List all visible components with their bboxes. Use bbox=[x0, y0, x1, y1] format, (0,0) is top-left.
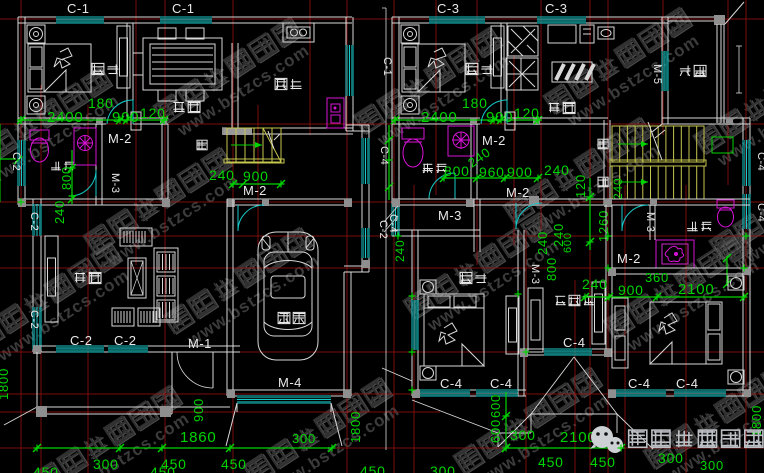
svg-text:C-2: C-2 bbox=[10, 152, 22, 171]
svg-text:450: 450 bbox=[590, 454, 616, 470]
svg-text:120: 120 bbox=[140, 105, 166, 121]
svg-text:C-4: C-4 bbox=[490, 376, 512, 391]
svg-text:1800: 1800 bbox=[348, 411, 363, 443]
svg-text:800: 800 bbox=[544, 257, 559, 281]
svg-text:C-4: C-4 bbox=[563, 335, 585, 350]
svg-text:C-2: C-2 bbox=[28, 310, 40, 329]
svg-text:M-2: M-2 bbox=[243, 183, 267, 198]
svg-text:C-1: C-1 bbox=[172, 1, 194, 16]
svg-text:2400: 2400 bbox=[47, 109, 84, 126]
svg-text:1860: 1860 bbox=[180, 429, 217, 446]
svg-text:C-1: C-1 bbox=[381, 57, 393, 76]
svg-text:900: 900 bbox=[618, 282, 644, 298]
svg-text:240: 240 bbox=[611, 178, 625, 200]
svg-text:2400: 2400 bbox=[421, 109, 458, 126]
svg-text:450: 450 bbox=[150, 464, 176, 473]
svg-text:300: 300 bbox=[700, 458, 724, 473]
svg-text:240: 240 bbox=[582, 276, 608, 292]
svg-text:300: 300 bbox=[93, 456, 119, 472]
svg-text:C-4: C-4 bbox=[440, 376, 462, 391]
svg-text:450: 450 bbox=[221, 456, 247, 472]
svg-text:600: 600 bbox=[488, 419, 503, 443]
svg-text:C-1: C-1 bbox=[67, 1, 89, 16]
svg-text:240: 240 bbox=[52, 200, 67, 224]
svg-text:C-4: C-4 bbox=[378, 146, 390, 165]
svg-text:800: 800 bbox=[444, 163, 470, 179]
svg-text:450: 450 bbox=[33, 464, 59, 473]
svg-text:C-2: C-2 bbox=[70, 333, 92, 348]
svg-text:180: 180 bbox=[88, 95, 114, 111]
svg-text:M-2: M-2 bbox=[108, 131, 132, 146]
svg-text:300: 300 bbox=[658, 450, 684, 466]
svg-text:M-5: M-5 bbox=[651, 64, 663, 84]
svg-text:450: 450 bbox=[538, 454, 564, 470]
svg-text:M-2: M-2 bbox=[617, 251, 641, 266]
svg-text:C-4: C-4 bbox=[676, 376, 698, 391]
svg-text:1800: 1800 bbox=[0, 368, 11, 400]
svg-text:300: 300 bbox=[430, 463, 456, 473]
svg-text:300: 300 bbox=[510, 427, 536, 443]
svg-text:240: 240 bbox=[209, 167, 235, 183]
svg-text:C-3: C-3 bbox=[437, 1, 459, 16]
svg-text:C-4: C-4 bbox=[755, 152, 764, 171]
svg-text:2100: 2100 bbox=[678, 281, 715, 298]
svg-text:900: 900 bbox=[243, 168, 269, 184]
svg-text:1260: 1260 bbox=[596, 210, 611, 242]
svg-text:240: 240 bbox=[393, 240, 407, 262]
svg-text:M-2: M-2 bbox=[506, 185, 530, 200]
svg-text:600: 600 bbox=[562, 232, 574, 253]
svg-text:C-2: C-2 bbox=[28, 212, 40, 231]
svg-text:C-4: C-4 bbox=[755, 203, 764, 222]
svg-text:240: 240 bbox=[535, 231, 550, 255]
svg-text:180: 180 bbox=[462, 95, 488, 111]
svg-text:M-4: M-4 bbox=[278, 375, 302, 390]
svg-text:300: 300 bbox=[292, 431, 316, 446]
svg-text:C-4: C-4 bbox=[628, 376, 650, 391]
svg-text:600: 600 bbox=[488, 394, 503, 418]
svg-text:450: 450 bbox=[360, 463, 386, 473]
svg-text:120: 120 bbox=[573, 174, 588, 198]
svg-text:M-1: M-1 bbox=[188, 336, 212, 351]
svg-text:240: 240 bbox=[544, 162, 570, 178]
svg-text:120: 120 bbox=[514, 105, 540, 121]
svg-text:M-3: M-3 bbox=[529, 264, 541, 284]
svg-text:360: 360 bbox=[645, 270, 669, 285]
svg-text:C-3: C-3 bbox=[545, 1, 567, 16]
svg-text:900: 900 bbox=[191, 398, 206, 422]
svg-text:M-3: M-3 bbox=[438, 208, 462, 223]
svg-text:C-2: C-2 bbox=[114, 333, 136, 348]
svg-text:M-3: M-3 bbox=[109, 173, 121, 193]
